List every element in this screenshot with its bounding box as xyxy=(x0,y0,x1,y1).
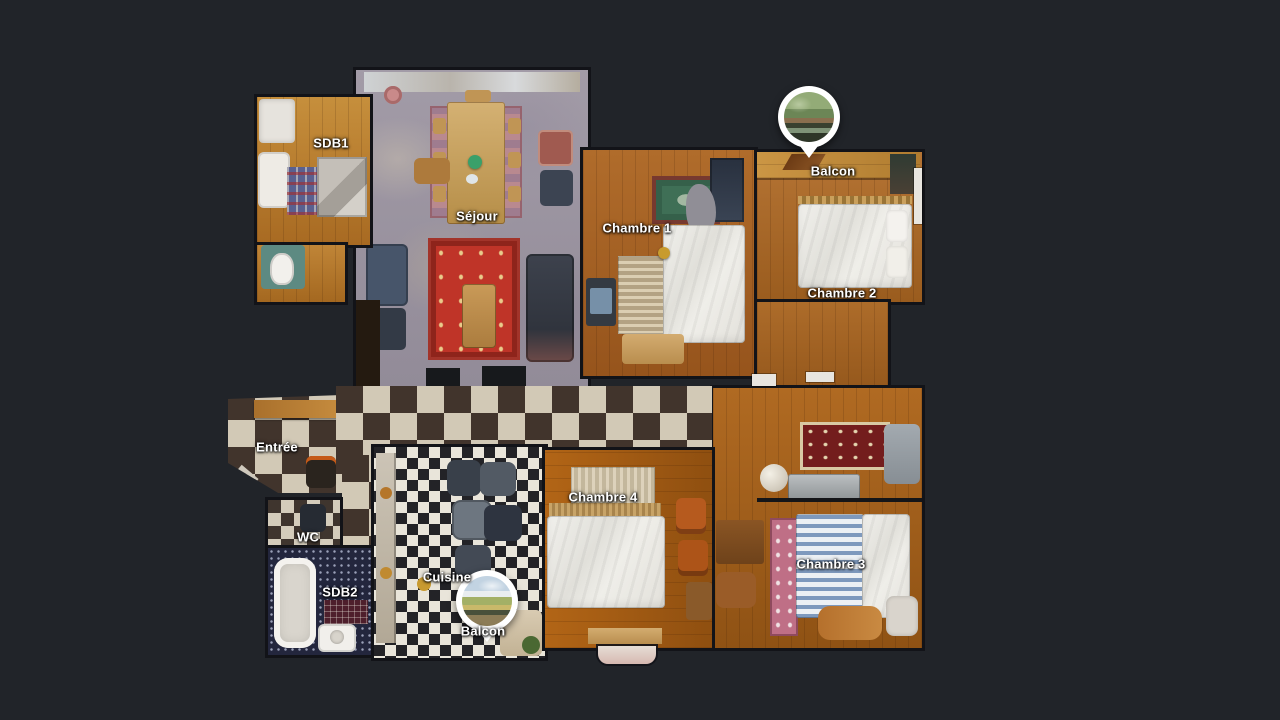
bed xyxy=(547,516,665,608)
monitor xyxy=(590,288,612,314)
stool xyxy=(414,158,450,184)
runner-rug xyxy=(770,518,798,636)
partition-wall xyxy=(757,498,922,502)
bath-rug xyxy=(324,600,368,624)
ottoman xyxy=(716,572,756,608)
dining-chair xyxy=(465,90,491,102)
basket xyxy=(384,86,402,104)
marker-tip xyxy=(797,142,821,158)
marker-ring xyxy=(456,570,518,632)
window-bay xyxy=(598,646,656,664)
desk-corner xyxy=(716,520,764,564)
balcony-view-photo xyxy=(784,92,834,142)
corridor-branch[interactable] xyxy=(342,455,376,557)
room-sdb1-lower[interactable] xyxy=(257,245,345,302)
metal-desk xyxy=(788,474,860,500)
armchair-dark xyxy=(540,170,573,206)
copper-pot xyxy=(380,567,392,579)
doormat xyxy=(231,465,258,491)
marker-ring xyxy=(778,86,840,148)
bathroom-sink xyxy=(258,152,290,208)
brass-lamp xyxy=(658,247,670,259)
side-table xyxy=(686,582,712,620)
room-entree[interactable] xyxy=(228,393,342,493)
panorama-marker-balcon-bas[interactable] xyxy=(456,570,518,632)
bench xyxy=(622,334,684,364)
pillow xyxy=(886,210,908,242)
floor-items xyxy=(818,606,882,640)
balcony-view-photo xyxy=(462,576,512,626)
armchair xyxy=(538,130,573,166)
kitchen-chair xyxy=(447,460,481,496)
shower xyxy=(317,157,367,217)
room-chambre1[interactable] xyxy=(583,150,755,376)
plaid-bath-rug xyxy=(287,167,319,215)
dollhouse-stage: SDB1 Séjour Chambre 1 Balcon Chambre 2 E… xyxy=(0,0,1280,720)
table-bowl xyxy=(466,174,478,184)
doorway-gap xyxy=(426,368,460,388)
sofa-right xyxy=(526,254,574,362)
bamboo-headboard xyxy=(549,503,661,516)
laundry-bag xyxy=(886,596,918,636)
toilet xyxy=(270,253,294,285)
bed xyxy=(663,225,745,343)
table-vase xyxy=(468,155,482,169)
door-sill xyxy=(752,374,776,386)
striped-rug xyxy=(618,256,666,334)
room-chambre3[interactable] xyxy=(713,388,922,648)
doorway-gap xyxy=(482,366,526,388)
room-chambre4[interactable] xyxy=(545,450,712,648)
office-chair xyxy=(306,456,336,488)
toilet-dark xyxy=(300,504,326,532)
entry-bench xyxy=(254,400,342,418)
orange-chair xyxy=(678,540,708,576)
dining-chair xyxy=(433,186,446,202)
coffee-table xyxy=(462,284,496,348)
laundry-pile xyxy=(259,99,295,143)
headboard xyxy=(798,196,912,204)
marker-tip xyxy=(475,626,499,642)
room-chambre2[interactable] xyxy=(757,152,922,302)
room-sejour[interactable] xyxy=(356,70,588,388)
room-sdb1[interactable] xyxy=(257,97,370,245)
kitchen-counter xyxy=(376,453,396,643)
pillow xyxy=(886,246,908,278)
kitchen-chair xyxy=(480,462,516,496)
paper-lamp xyxy=(760,464,788,492)
kilim-rug xyxy=(800,422,890,470)
dining-chair xyxy=(433,118,446,134)
kitchen-chair xyxy=(484,505,522,541)
dining-chair xyxy=(508,186,521,202)
brass-pan xyxy=(417,577,431,591)
sofa-left xyxy=(366,244,408,306)
floorplan-canvas[interactable]: SDB1 Séjour Chambre 1 Balcon Chambre 2 E… xyxy=(0,0,1280,720)
plant xyxy=(522,636,540,654)
bench xyxy=(588,628,662,644)
copper-pot xyxy=(380,487,392,499)
door-sill xyxy=(806,372,834,382)
dining-chair xyxy=(508,152,521,168)
window-sill xyxy=(914,168,922,224)
orange-chair xyxy=(676,498,706,534)
dining-chair xyxy=(508,118,521,134)
panorama-marker-balcon-haut[interactable] xyxy=(778,86,840,148)
bed-striped-duvet xyxy=(796,514,864,618)
sofa xyxy=(884,424,920,484)
bathtub xyxy=(274,558,316,648)
wardrobe-dark xyxy=(356,300,380,388)
balcony-plants xyxy=(890,154,916,194)
corridor[interactable] xyxy=(336,386,712,456)
sink-basin xyxy=(330,630,344,644)
